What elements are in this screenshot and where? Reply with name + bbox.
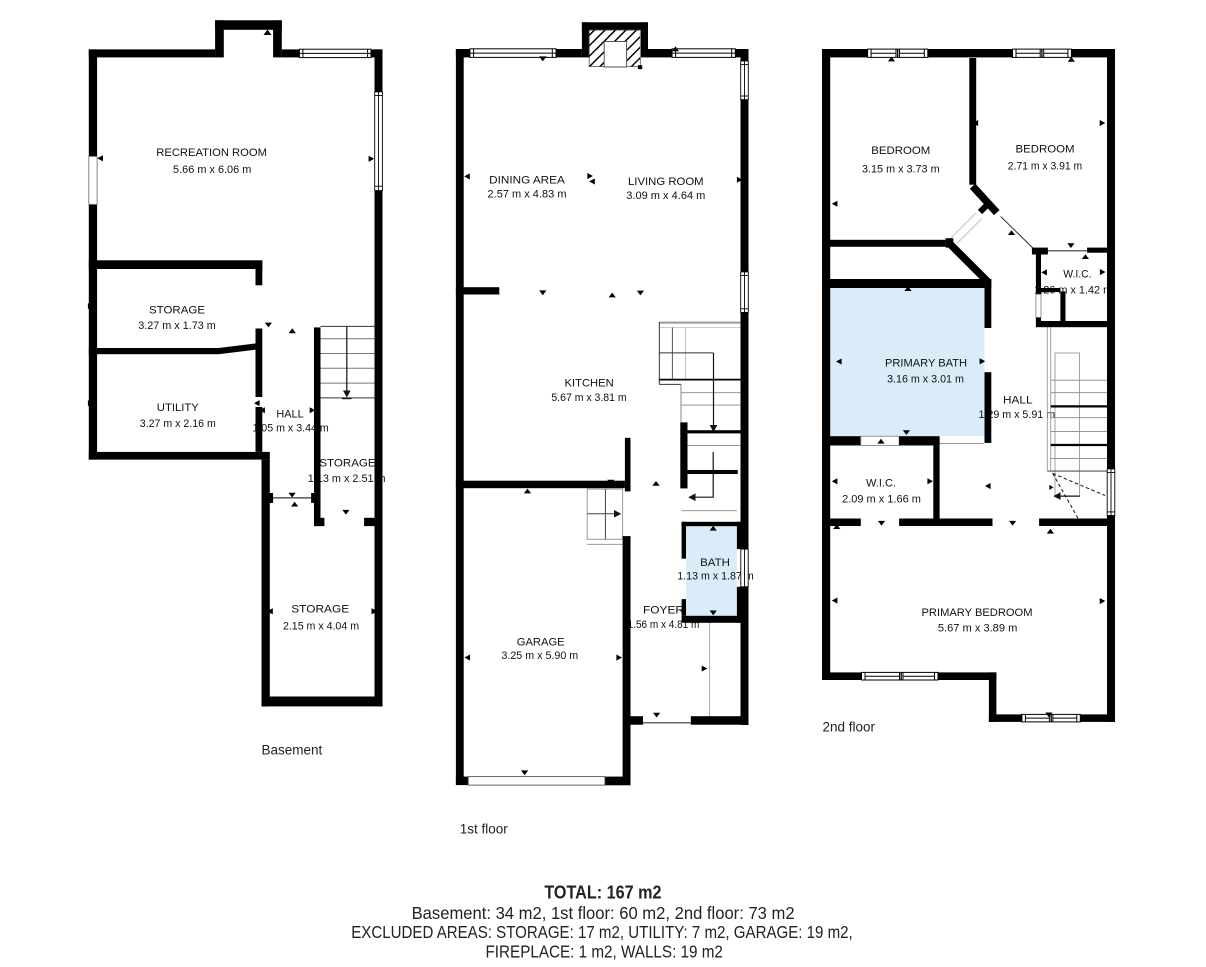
svg-text:BEDROOM: BEDROOM	[871, 145, 930, 157]
svg-text:3.15 m x 3.73 m: 3.15 m x 3.73 m	[862, 163, 940, 175]
svg-text:5.66 m x 6.06 m: 5.66 m x 6.06 m	[173, 164, 251, 176]
svg-text:UTILITY: UTILITY	[157, 402, 199, 414]
svg-text:1st floor: 1st floor	[460, 822, 509, 837]
svg-text:FOYER: FOYER	[643, 604, 684, 616]
svg-text:2.15 m x 4.04 m: 2.15 m x 4.04 m	[283, 621, 359, 633]
svg-text:2.09 m x 1.66 m: 2.09 m x 1.66 m	[842, 493, 921, 505]
svg-text:GARAGE: GARAGE	[517, 637, 565, 649]
svg-text:FIREPLACE: 1 m2, WALLS: 19 m2: FIREPLACE: 1 m2, WALLS: 19 m2	[486, 941, 723, 961]
svg-text:LIVING ROOM: LIVING ROOM	[628, 176, 704, 188]
svg-text:STORAGE: STORAGE	[319, 458, 375, 470]
svg-text:HALL: HALL	[276, 409, 303, 421]
svg-text:TOTAL: 167 m2: TOTAL: 167 m2	[544, 882, 661, 903]
svg-text:5.67 m x 3.81 m: 5.67 m x 3.81 m	[551, 392, 626, 404]
svg-text:Basement: Basement	[262, 743, 323, 758]
svg-text:3.25 m x 5.90 m: 3.25 m x 5.90 m	[501, 650, 578, 662]
svg-text:2.71 m x 3.91 m: 2.71 m x 3.91 m	[1008, 160, 1082, 172]
svg-text:W.I.C.: W.I.C.	[1063, 269, 1091, 281]
svg-text:BATH: BATH	[700, 557, 730, 569]
svg-text:EXCLUDED AREAS: STORAGE: 17 m2: EXCLUDED AREAS: STORAGE: 17 m2, UTILITY:…	[351, 922, 853, 942]
svg-text:W.I.C.: W.I.C.	[866, 478, 896, 490]
svg-text:Basement: 34 m2, 1st floor: 60: Basement: 34 m2, 1st floor: 60 m2, 2nd f…	[412, 903, 795, 923]
svg-text:STORAGE: STORAGE	[291, 604, 349, 616]
svg-text:DINING AREA: DINING AREA	[489, 174, 565, 186]
svg-text:3.09 m x 4.64 m: 3.09 m x 4.64 m	[626, 190, 705, 202]
svg-text:3.27 m x 2.16 m: 3.27 m x 2.16 m	[140, 418, 216, 430]
svg-text:2nd floor: 2nd floor	[823, 720, 876, 735]
svg-text:HALL: HALL	[1003, 394, 1033, 406]
svg-text:BEDROOM: BEDROOM	[1016, 143, 1075, 155]
svg-text:3.27 m x 1.73 m: 3.27 m x 1.73 m	[138, 320, 216, 332]
svg-text:5.67 m x 3.89 m: 5.67 m x 3.89 m	[938, 622, 1018, 634]
svg-text:2.57 m x 4.83 m: 2.57 m x 4.83 m	[488, 188, 567, 200]
svg-text:KITCHEN: KITCHEN	[565, 377, 614, 389]
svg-text:3.16 m x 3.01 m: 3.16 m x 3.01 m	[887, 374, 964, 386]
svg-text:PRIMARY BATH: PRIMARY BATH	[885, 357, 967, 369]
svg-text:STORAGE: STORAGE	[149, 305, 205, 317]
svg-text:PRIMARY BEDROOM: PRIMARY BEDROOM	[922, 607, 1033, 619]
svg-text:RECREATION ROOM: RECREATION ROOM	[156, 147, 267, 159]
